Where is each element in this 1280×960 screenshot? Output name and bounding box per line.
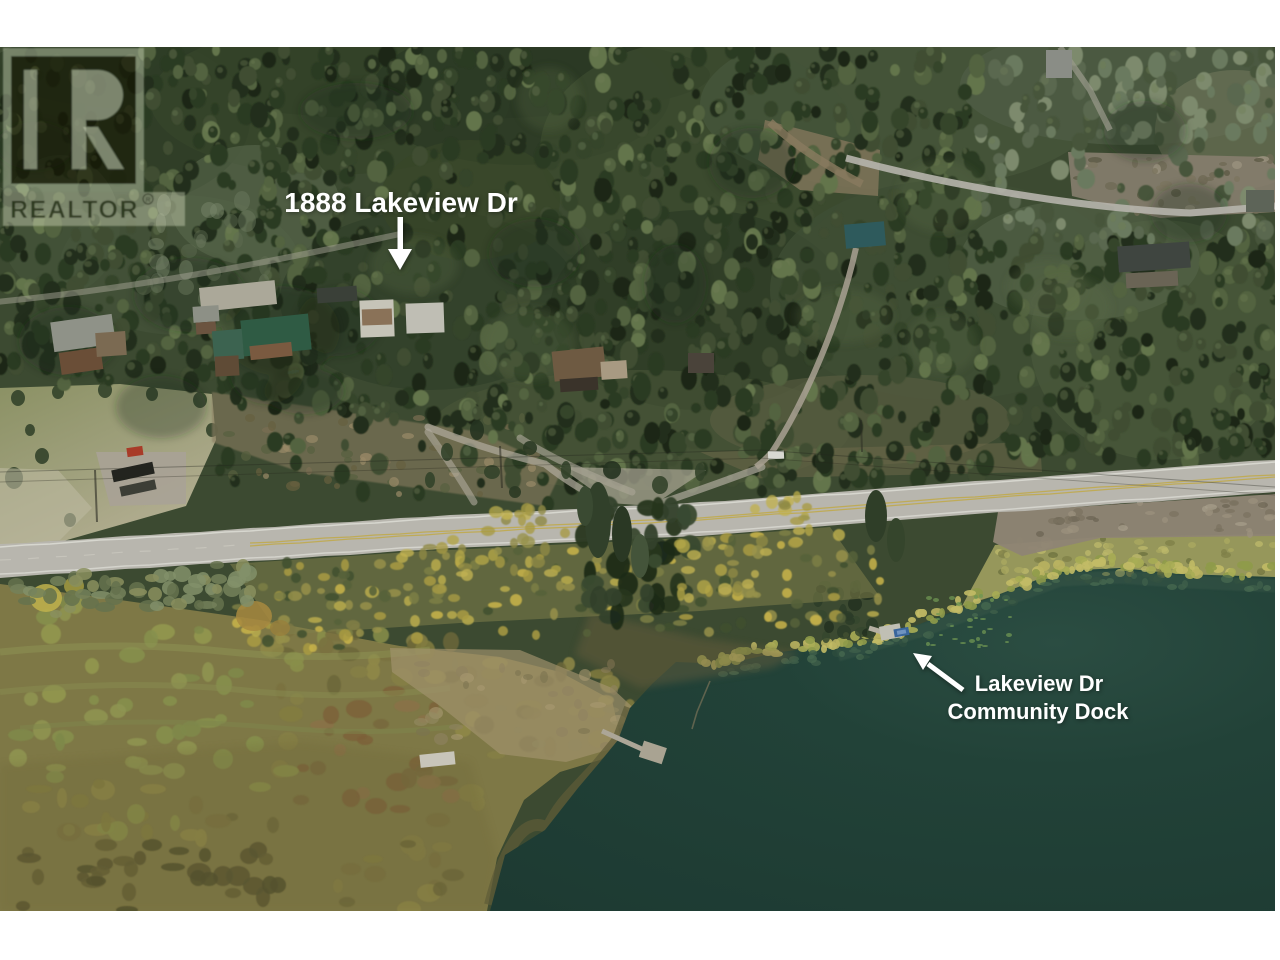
svg-text:1888 Lakeview Dr: 1888 Lakeview Dr <box>284 187 518 218</box>
svg-text:REALTOR: REALTOR <box>10 196 139 224</box>
svg-text:Lakeview Dr: Lakeview Dr <box>975 671 1104 696</box>
svg-text:R: R <box>145 197 150 204</box>
svg-text:Community Dock: Community Dock <box>948 699 1130 724</box>
